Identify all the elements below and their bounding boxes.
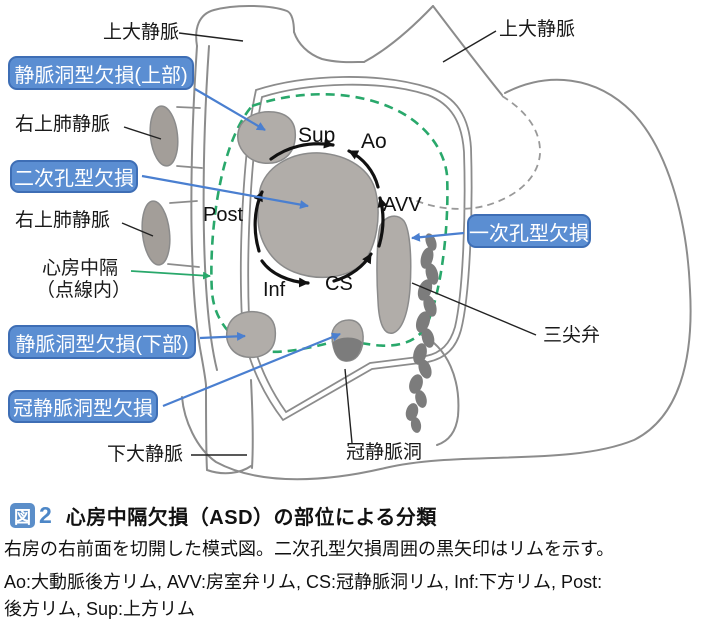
septum-label-line2: （点線内） (36, 280, 131, 302)
rim-label-sup: Sup (298, 124, 335, 148)
figure-badge: 図 (10, 503, 35, 528)
secundum-label-box: 二次孔型欠損 (10, 160, 138, 193)
primum-label-box: 一次孔型欠損 (467, 214, 591, 248)
svc-left-label: 上大静脈 (103, 22, 179, 44)
caption-note: 右房の右前面を切開した模式図。二次孔型欠損周囲の黒矢印はリムを示す。 (4, 535, 614, 561)
atrium-roof (294, 32, 364, 62)
ivc-label: 下大静脈 (107, 444, 183, 466)
rupv-upper-connectors (177, 107, 202, 168)
svc-left-tube (196, 6, 294, 46)
septum-arrow (131, 271, 210, 276)
rim-label-ao: Ao (361, 130, 387, 154)
rim-label-cs: CS (325, 273, 353, 296)
caption-title-row: 図 2 心房中隔欠損（ASD）の部位による分類 (10, 501, 437, 530)
svc-right-wall-a (364, 6, 433, 62)
figure-number: 2 (39, 502, 52, 529)
coronary-sinus-label: 冠静脈洞 (346, 442, 422, 464)
svc-right-label: 上大静脈 (499, 19, 575, 41)
primum-arrow (412, 233, 464, 238)
secundum-defect-shape (258, 153, 378, 277)
svc-right-leader (443, 31, 496, 62)
ivc-right-wall (251, 380, 253, 468)
rupv-lower-label: 右上肺静脈 (15, 210, 110, 232)
caption-abbreviations-line1: Ao:大動脈後方リム, AVV:房室弁リム, CS:冠静脈洞リム, Inf:下方… (4, 568, 602, 594)
svd-lower-label-box: 静脈洞型欠損(下部) (8, 325, 196, 359)
figure-title: 心房中隔欠損（ASD）の部位による分類 (66, 501, 437, 530)
hidden-boundary-dashed (410, 96, 540, 209)
asd-figure: 上大静脈 上大静脈 右上肺静脈 右上肺静脈 心房中隔 （点線内） 下大静脈 冠静… (0, 0, 710, 625)
tricuspid-label: 三尖弁 (543, 325, 600, 347)
svc-right-wall-b (433, 6, 502, 95)
septum-label-line1: 心房中隔 (42, 258, 118, 280)
rupv-upper-label: 右上肺静脈 (15, 114, 110, 136)
svc-left-leader (179, 33, 243, 41)
sinus-venosus-lower-defect-shape (227, 312, 276, 358)
caption-abbreviations-line2: 後方リム, Sup:上方リム (4, 595, 195, 621)
csd-label-box: 冠静脈洞型欠損 (8, 390, 158, 423)
rim-label-avv: AVV (383, 194, 422, 217)
rim-label-inf: Inf (263, 279, 285, 302)
rupv-lower-connectors (168, 201, 199, 267)
svd-upper-label-box: 静脈洞型欠損(上部) (8, 56, 194, 90)
rim-label-post: Post (203, 204, 243, 227)
